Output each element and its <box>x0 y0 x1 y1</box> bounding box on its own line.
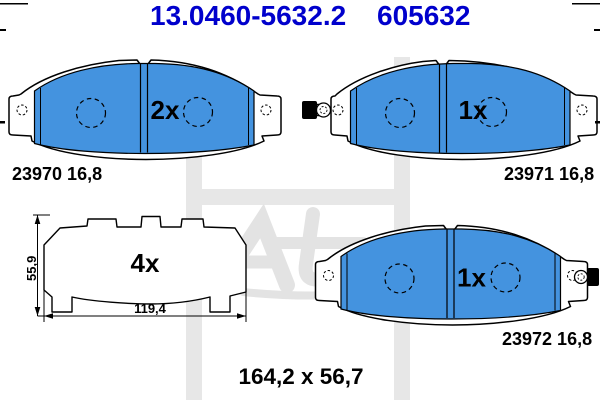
svg-text:119,4: 119,4 <box>134 301 167 316</box>
svg-text:1x: 1x <box>457 263 486 293</box>
svg-text:4x: 4x <box>131 248 160 278</box>
svg-text:1x: 1x <box>459 95 488 125</box>
svg-text:23971 16,8: 23971 16,8 <box>504 164 594 184</box>
svg-text:23970 16,8: 23970 16,8 <box>12 164 102 184</box>
svg-text:605632: 605632 <box>377 0 470 31</box>
svg-text:13.0460-5632.2: 13.0460-5632.2 <box>150 0 346 31</box>
svg-text:55,9: 55,9 <box>24 256 39 281</box>
svg-text:23972 16,8: 23972 16,8 <box>502 329 592 349</box>
svg-text:2x: 2x <box>151 95 180 125</box>
svg-text:164,2 x 56,7: 164,2 x 56,7 <box>238 364 363 389</box>
